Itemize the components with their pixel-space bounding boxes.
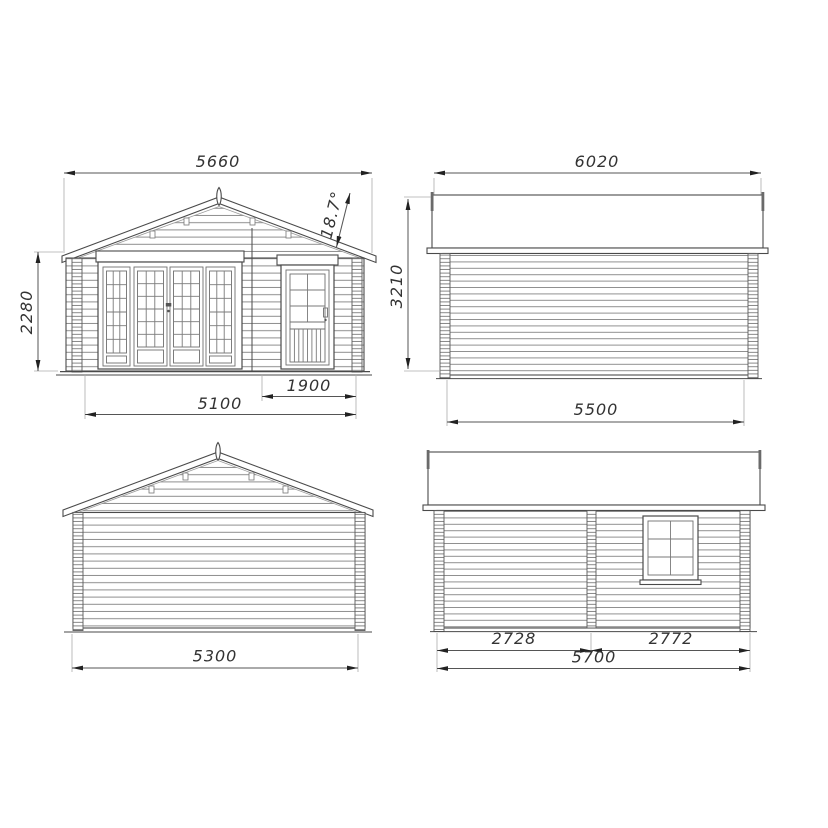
purlin-end [286, 231, 291, 238]
dim-rear-wall-width-label: 5300 [193, 647, 238, 666]
dim-front-wall-height-label: 2280 [17, 290, 36, 335]
roof-finial [216, 443, 221, 461]
dim-side-b-wall-length-label: 5700 [572, 648, 617, 667]
dim-front-wall-height: 2280 [17, 252, 63, 371]
elevation-drawing: 5660 [0, 0, 828, 828]
dim-front-door-bay: 1900 [262, 374, 356, 419]
window-sill [640, 580, 701, 585]
dim-side-a-roof-length: 6020 [434, 152, 761, 195]
fascia-board [423, 505, 765, 511]
roof-finial [217, 188, 222, 206]
dim-side-a-roof-length-label: 6020 [575, 152, 620, 171]
side-wall-siding [443, 254, 755, 376]
purlin-end [184, 218, 189, 225]
dim-side-b-rear-bay-label: 2772 [649, 629, 694, 648]
front-elevation-view: 5660 [17, 152, 376, 419]
elevation-drawing-sheet: 5660 [0, 0, 828, 828]
side-elevation-b-view: 2728 2772 5700 [423, 450, 765, 672]
door-lintel [96, 251, 244, 262]
bargeboard-end-left [427, 450, 430, 469]
dim-front-roof-width-label: 5660 [196, 152, 241, 171]
roof-panel [432, 195, 763, 248]
purlin-end [250, 218, 255, 225]
dim-side-a-overall-height-label: 3210 [387, 264, 406, 309]
roof-panel [428, 452, 760, 505]
corner-log-ends-right [748, 254, 758, 379]
partition-log-ends [587, 511, 596, 629]
dim-rear-wall-width: 5300 [72, 634, 358, 672]
dim-side-a-wall-length: 5500 [447, 380, 744, 426]
gable-siding [78, 461, 358, 513]
corner-log-ends-right [352, 258, 362, 372]
corner-log-ends-right [355, 513, 365, 631]
dim-front-door-bay-label: 1900 [287, 376, 332, 395]
bargeboard-end-right [759, 450, 762, 469]
fascia-board [427, 248, 768, 254]
corner-log-ends-left [434, 511, 444, 632]
dim-side-b-front-bay: 2728 [437, 629, 591, 672]
bargeboard-end-right [762, 192, 765, 211]
corner-log-ends-left [72, 258, 82, 372]
purlin-end [150, 231, 155, 238]
dim-side-b-front-bay-label: 2728 [492, 629, 537, 648]
dim-front-main-bay-label: 5100 [198, 394, 243, 413]
dim-side-a-wall-length-label: 5500 [574, 400, 619, 419]
side-elevation-a-view: 6020 3210 5500 [387, 152, 768, 426]
corner-log-ends-right [740, 511, 750, 632]
dim-roof-pitch-label: 18.7° [317, 189, 347, 241]
rear-wall-siding [73, 513, 365, 629]
glazed-double-door-unit [96, 251, 244, 369]
entry-door [277, 255, 338, 369]
bargeboard-end-left [431, 192, 434, 211]
rear-elevation-view: 5300 [63, 443, 373, 673]
door-lintel [277, 255, 338, 265]
corner-log-ends-left [440, 254, 450, 379]
corner-log-ends-left [73, 513, 83, 631]
side-window [640, 516, 701, 585]
